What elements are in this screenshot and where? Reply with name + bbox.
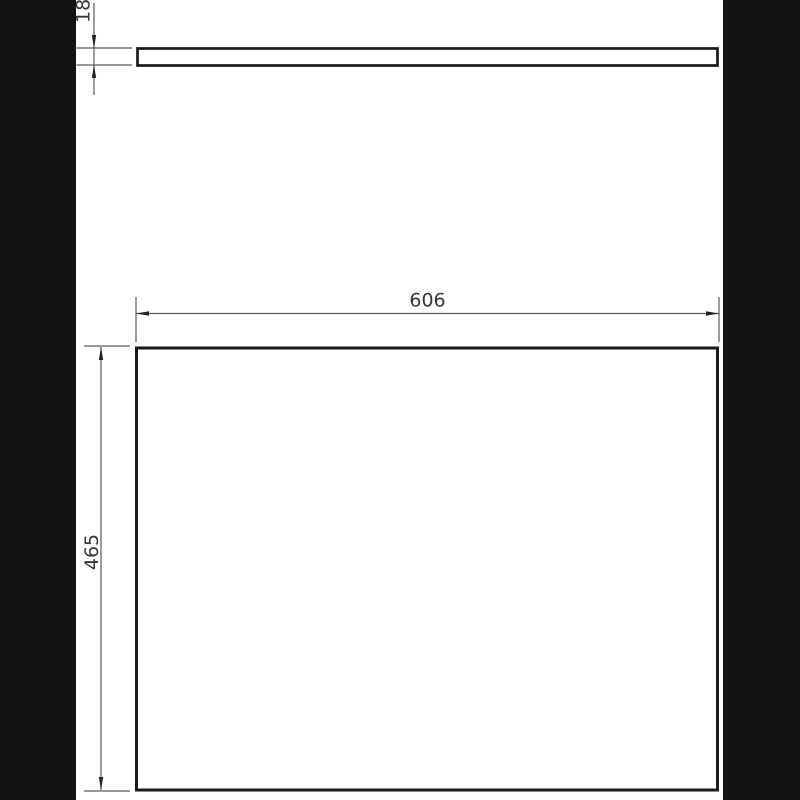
left-margin-band bbox=[0, 0, 76, 800]
dim-height-label: 465 bbox=[81, 534, 103, 570]
panel-front-view bbox=[137, 348, 718, 790]
panel-side-view bbox=[138, 49, 718, 66]
drawing-canvas: 18 606 465 bbox=[0, 0, 800, 800]
right-margin-band bbox=[723, 0, 800, 800]
technical-drawing: 18 606 465 bbox=[0, 0, 800, 800]
dim-thickness-label: 18 bbox=[73, 0, 95, 23]
dim-width-label: 606 bbox=[409, 290, 445, 312]
